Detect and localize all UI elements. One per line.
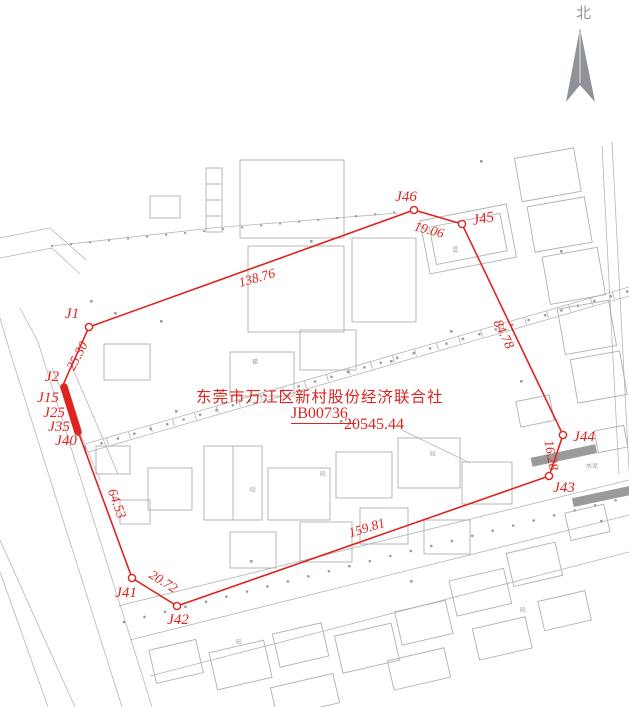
cadastral-map-page: 砼砼砼 砼砼梯 混水泥 J1J2J15J25J35J40J41J42J43J44… [0,0,629,707]
edge-distance-label: 25.30 [63,339,91,373]
edge-distance-label: 16.28 [541,439,561,472]
north-arrow: 北 [552,2,616,112]
survey-point-marker-J1 [85,323,92,330]
parcel-owner-name: 东莞市万江区新村股份经济联合社 [196,385,444,407]
survey-point-marker-J44 [559,431,566,438]
survey-point-label-J44: J44 [573,429,595,445]
north-arrow-icon [552,2,616,112]
parcel-area-value: 20545.44 [344,416,404,434]
parcel-overlay: J1J2J15J25J35J40J41J42J43J44J45J46138.76… [0,0,629,707]
survey-point-marker-J42 [173,602,180,609]
edge-distance-label: 19.06 [413,218,446,240]
survey-point-label-J41: J41 [115,585,137,601]
survey-point-marker-J45 [458,220,465,227]
edge-distance-label: 138.76 [237,265,277,290]
edge-distance-label: 20.72 [147,567,181,596]
survey-point-label-J2: J2 [45,369,60,385]
survey-point-label-J42: J42 [167,612,189,628]
survey-point-label-J43: J43 [553,480,575,496]
survey-point-label-J45: J45 [471,209,496,229]
survey-point-marker-J41 [128,574,135,581]
survey-point-marker-J43 [545,472,552,479]
survey-point-label-J15: J15 [37,390,59,406]
survey-point-label-J40: J40 [55,433,77,449]
survey-point-label-J1: J1 [65,306,79,322]
edge-distance-label: 159.81 [347,515,387,540]
edge-distance-label: 84.78 [491,317,518,351]
survey-point-marker-J46 [410,206,417,213]
survey-point-label-J46: J46 [395,189,417,205]
